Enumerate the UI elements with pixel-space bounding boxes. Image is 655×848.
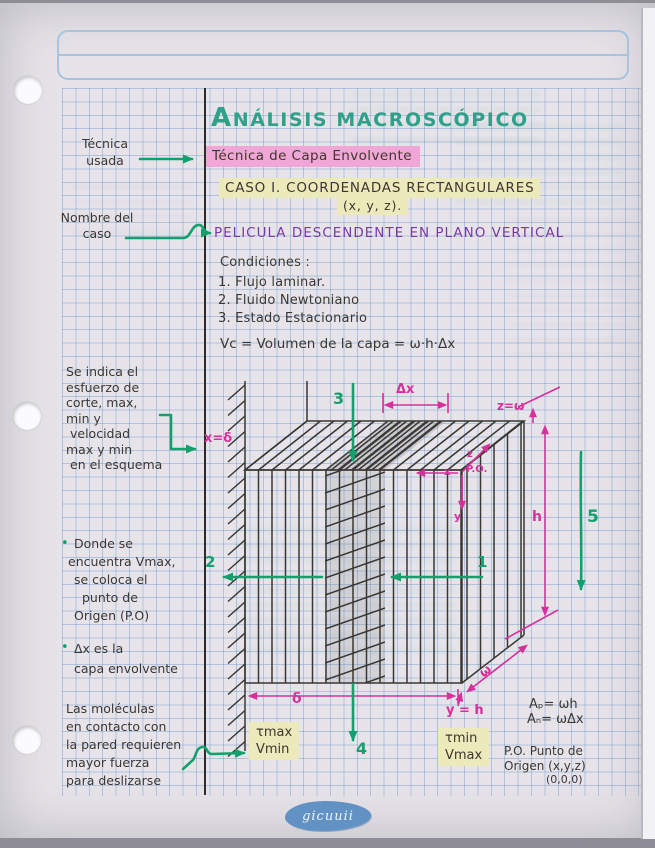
header-divider-line xyxy=(59,54,627,56)
tau-max-vmin-note: τmax Vmin xyxy=(249,722,299,760)
technique-heading: Técnica de Capa Envolvente xyxy=(206,146,420,167)
origin-point-definition: P.O. Punto de Origen (x,y,z) (0,0,0) xyxy=(504,744,586,788)
projected-area-formula: Aₚ= ωh xyxy=(529,697,578,712)
margin-note-technique-used: Técnica usada xyxy=(60,135,150,169)
name-header-box xyxy=(57,30,629,80)
bullet-dot: • xyxy=(61,640,69,655)
label-step-5: 5 xyxy=(587,507,599,527)
normal-area-formula: Aₙ= ωΔx xyxy=(527,712,584,727)
tau-min-vmax-note: τmin Vmax xyxy=(438,728,489,766)
brand-stamp-text: gicuuii xyxy=(302,809,354,824)
label-dx: Δx xyxy=(396,382,414,397)
label-axis-y: y xyxy=(454,510,461,523)
label-axis-z: z xyxy=(467,449,473,460)
margin-note-stress: Se indica el esfuerzo de corte, max, min… xyxy=(66,364,178,473)
case-heading: CASO I. COORDENADAS RECTANGULARES xyxy=(219,178,540,198)
margin-note-molecules: Las moléculas en contacto con la pared r… xyxy=(66,700,196,790)
bullet-dot: • xyxy=(61,536,69,551)
condition-item: 1. Flujo laminar. xyxy=(218,275,325,290)
volume-formula: Vc = Volumen de la capa = ω·h·Δx xyxy=(220,336,455,352)
label-z-equals-omega: z=ω xyxy=(497,399,524,413)
margin-note-case-name: Nombre del caso xyxy=(50,210,144,242)
label-step-4: 4 xyxy=(356,739,367,758)
margin-note-dx: Δx es la capa envolvente xyxy=(74,639,204,679)
label-y-equals-h: y = h xyxy=(446,703,484,718)
condition-item: 2. Fluido Newtoniano xyxy=(218,293,359,308)
page-right-edge xyxy=(641,8,655,839)
punch-hole-middle xyxy=(13,402,41,430)
margin-note-vmax: Donde se encuentra Vmax, se coloca el pu… xyxy=(74,535,194,625)
label-step-2: 2 xyxy=(205,553,215,571)
conditions-title: Condiciones : xyxy=(220,255,310,270)
condition-item: 3. Estado Estacionario xyxy=(218,311,367,326)
label-delta-width: δ xyxy=(292,691,302,707)
notebook-brand-stamp: gicuuii xyxy=(285,801,371,831)
page-title: ANÁLISIS MACROSCÓPICO xyxy=(211,103,529,133)
film-heading: PELICULA DESCENDENTE EN PLANO VERTICAL xyxy=(214,225,564,241)
label-step-1: 1 xyxy=(477,553,487,571)
label-height-h: h xyxy=(532,509,542,525)
label-x-equals-delta: x=δ xyxy=(204,431,232,446)
label-axis-x: x xyxy=(444,467,450,478)
case-coordinates: (x, y, z). xyxy=(337,196,408,215)
punch-hole-bottom xyxy=(13,726,41,754)
scanned-notebook-photo: ANÁLISIS MACROSCÓPICO Técnica de Capa En… xyxy=(0,0,655,848)
punch-hole-top xyxy=(14,76,42,104)
label-origin-point: P.O. xyxy=(466,464,487,475)
label-step-3: 3 xyxy=(333,389,344,408)
notebook-page: ANÁLISIS MACROSCÓPICO Técnica de Capa En… xyxy=(0,3,655,838)
